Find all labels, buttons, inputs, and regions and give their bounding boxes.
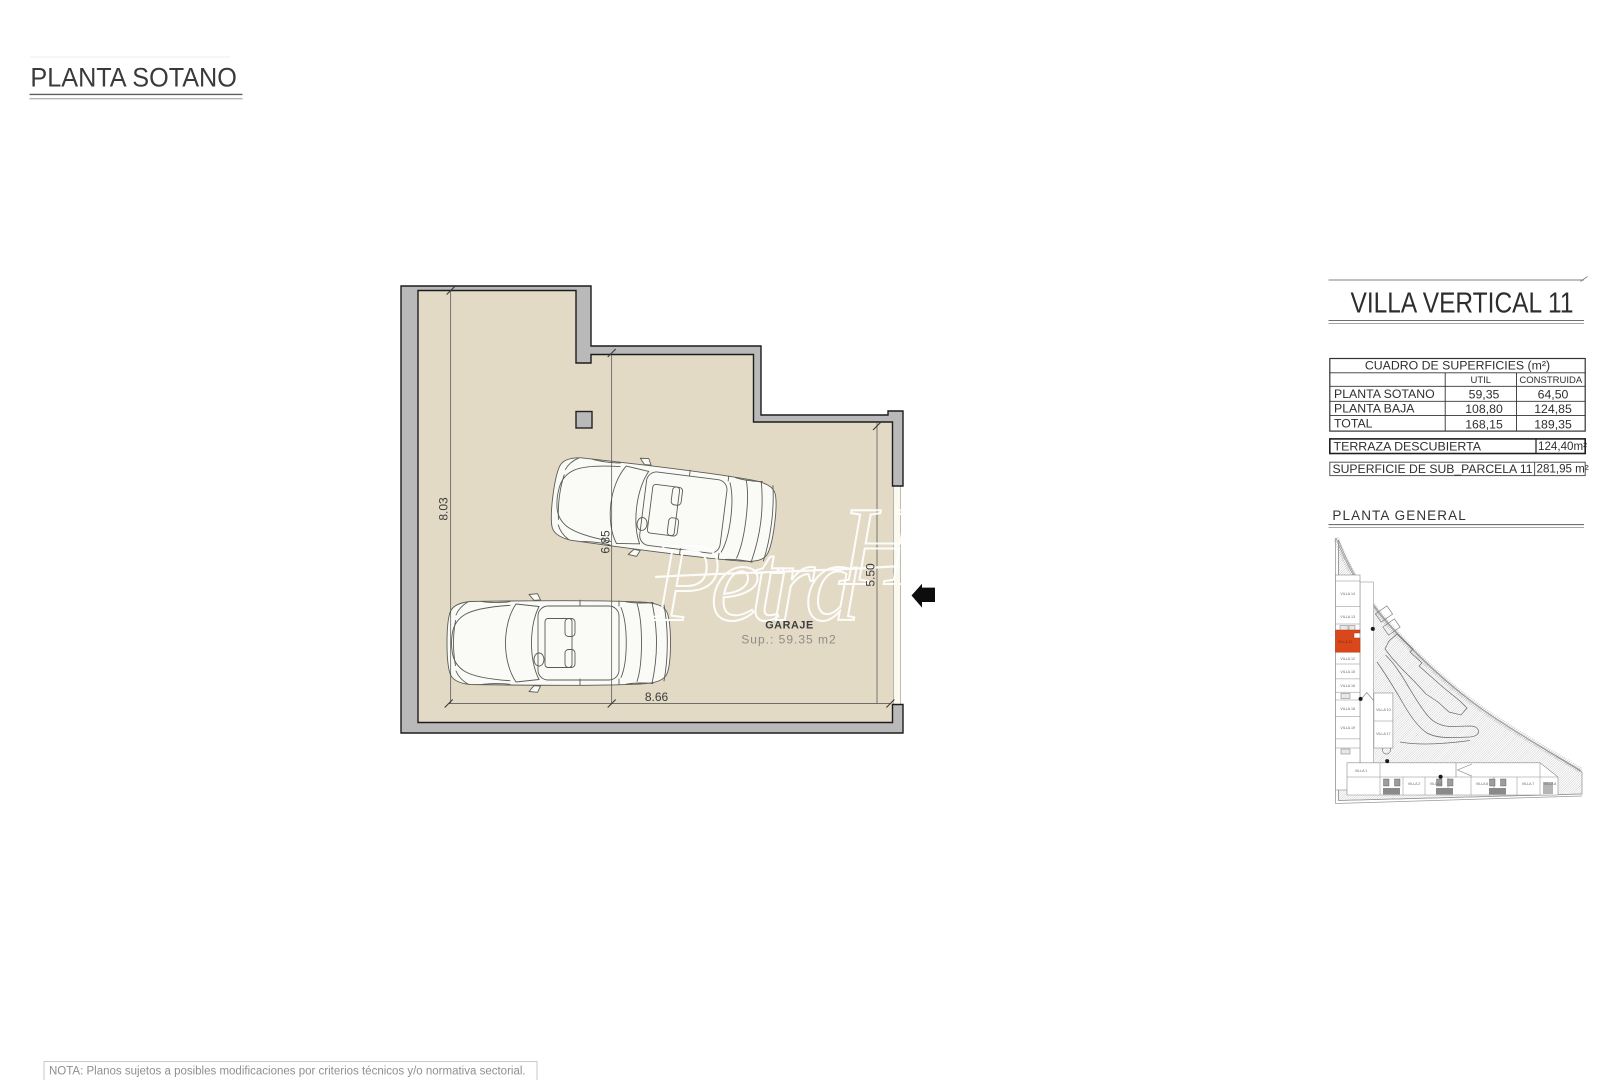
svg-text:124,85: 124,85 [1534,402,1572,416]
svg-text:VILLA 3: VILLA 3 [1430,782,1443,786]
svg-text:VILLA 11: VILLA 11 [1338,640,1352,644]
svg-text:VILLA VERTICAL 11: VILLA VERTICAL 11 [1351,288,1574,320]
svg-text:TERRAZA DESCUBIERTA: TERRAZA DESCUBIERTA [1334,439,1482,453]
svg-text:VILLA 12: VILLA 12 [1340,657,1355,661]
svg-text:CUADRO DE SUPERFICIES (m²): CUADRO DE SUPERFICIES (m²) [1365,358,1550,372]
svg-text:GARAJE: GARAJE [765,620,814,632]
svg-text:PLANTA GENERAL: PLANTA GENERAL [1332,508,1466,523]
svg-text:VILLA 14: VILLA 14 [1340,592,1355,596]
svg-text:8.03: 8.03 [437,497,451,521]
svg-text:PLANTA BAJA: PLANTA BAJA [1334,401,1415,415]
svg-text:PLANTA SOTANO: PLANTA SOTANO [1334,387,1435,401]
svg-text:SUPERFICIE DE SUB_PARCELA 11: SUPERFICIE DE SUB_PARCELA 11 [1333,462,1533,476]
svg-text:281,95 m²: 281,95 m² [1537,463,1589,476]
svg-text:6.85: 6.85 [599,530,613,554]
svg-text:VILLA 10: VILLA 10 [1376,708,1391,712]
svg-text:VILLA 2: VILLA 2 [1408,782,1421,786]
svg-text:VILLA 1: VILLA 1 [1355,769,1368,773]
svg-text:UTIL: UTIL [1471,375,1492,386]
svg-text:59,35: 59,35 [1469,387,1500,401]
svg-text:VILLA 6: VILLA 6 [1476,782,1489,786]
svg-text:CONSTRUIDA: CONSTRUIDA [1519,375,1582,386]
svg-text:108,80: 108,80 [1465,402,1503,416]
svg-text:Ho: Ho [838,485,964,609]
svg-text:TOTAL: TOTAL [1334,417,1373,431]
svg-text:124,40m²: 124,40m² [1538,440,1587,453]
svg-text:5.50: 5.50 [863,563,877,587]
svg-text:64,50: 64,50 [1538,387,1569,401]
svg-text:VILLA 13: VILLA 13 [1340,615,1355,619]
svg-text:189,35: 189,35 [1534,417,1572,431]
svg-text:Sup.: 59.35 m2: Sup.: 59.35 m2 [741,633,836,647]
svg-text:8.66: 8.66 [645,690,669,704]
svg-text:VILLA 18: VILLA 18 [1340,707,1355,711]
svg-text:NOTA: Planos sujetos a posible: NOTA: Planos sujetos a posibles modifica… [49,1066,526,1078]
svg-text:VILLA 19: VILLA 19 [1340,726,1355,730]
svg-text:Petra: Petra [651,521,857,645]
svg-text:VILLA 15: VILLA 15 [1340,670,1355,674]
svg-text:VILLA 8: VILLA 8 [1544,782,1557,786]
svg-text:PLANTA SOTANO: PLANTA SOTANO [30,62,237,92]
svg-text:VILLA 17: VILLA 17 [1376,732,1391,736]
svg-text:168,15: 168,15 [1465,417,1503,431]
svg-text:VILLA 7: VILLA 7 [1522,782,1535,786]
svg-text:VILLA 16: VILLA 16 [1340,684,1355,688]
